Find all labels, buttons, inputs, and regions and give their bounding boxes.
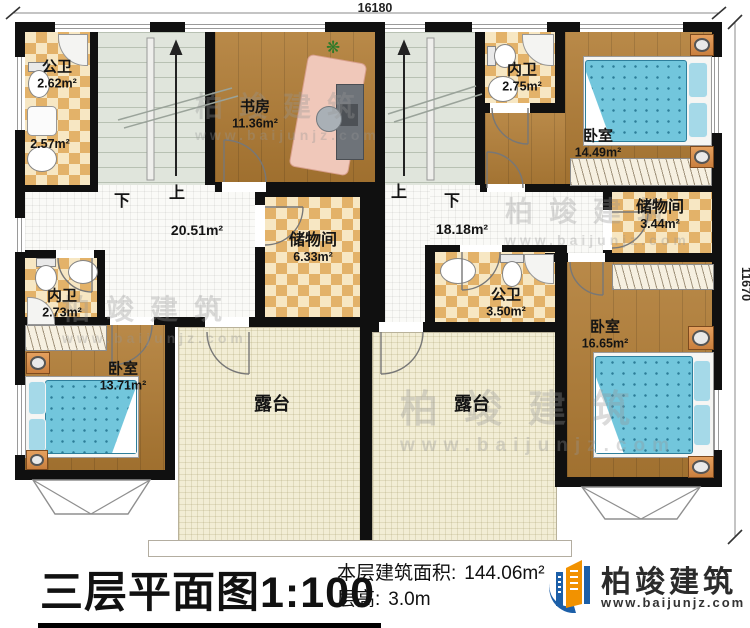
floor-height-row: 层高:3.0m [337, 587, 545, 613]
plan-info: 本层建筑面积:144.06m² 层高:3.0m [337, 561, 545, 612]
stair-label-left-up: 上 [169, 185, 185, 203]
room-label-bed-br: 卧室16.65m² [582, 320, 629, 351]
window-top-2 [185, 22, 325, 32]
plan-title: 三层平面图1:100 [38, 558, 381, 628]
window-left-2 [15, 218, 25, 252]
lamp-icon [694, 150, 710, 164]
room-label-bath-bl: 内卫2.73m² [42, 289, 82, 320]
room-label-bath-tl: 公卫2.62m² [37, 60, 77, 91]
sink-icon [440, 258, 476, 284]
lamp-icon [692, 460, 710, 474]
wall-stairs-bath-tr [475, 32, 485, 185]
nightstand-topright-1 [690, 34, 714, 56]
door-gap-terrace-right [379, 322, 423, 332]
window-top-5 [580, 22, 683, 32]
watermark: 柏竣建筑 www.baijunjz.com [195, 85, 380, 143]
wall-bath-tl-stairs [90, 32, 98, 185]
window-top-4 [472, 22, 547, 32]
washer-icon [27, 106, 57, 136]
window-left-3 [15, 385, 25, 455]
lamp-icon [30, 356, 46, 370]
wall-bed-bl-bottom [15, 470, 175, 480]
bed-topright-pillow-1 [688, 62, 708, 98]
wall-bath-tr-right [555, 22, 565, 113]
bed-bottomright-pillow-1 [693, 360, 711, 402]
window-left-1 [15, 57, 25, 130]
bed-bottomleft-pillow-2 [28, 418, 46, 452]
stair-label-left-down: 下 [114, 193, 130, 211]
room-label-bath-tr: 内卫2.75m² [502, 63, 542, 94]
nightstand-bottomright-2 [688, 456, 714, 478]
plant-icon: ❋ [326, 38, 340, 58]
room-label-study: 书房11.36m² [232, 100, 278, 131]
terrace-edge-band [148, 540, 572, 557]
stair-label-right-down: 下 [444, 193, 460, 211]
door-gap-bath-bl [56, 250, 94, 258]
door-gap-bed-br [568, 253, 605, 262]
floorplan-page: { "dimensions": { "top": "16180", "right… [0, 0, 750, 624]
wall-bed-br-bottom [555, 477, 712, 487]
bed-bottomleft-pillow-1 [28, 381, 46, 415]
dimension-top: 16180 [358, 1, 393, 15]
toilet-icon [502, 261, 522, 287]
room-label-hall-right: 18.18m² [436, 222, 488, 238]
door-gap-bath-tr [490, 103, 530, 113]
floor-height-label: 层高: [337, 589, 380, 610]
door-gap-bath-br [460, 245, 502, 252]
hallway-right-ext-floor [385, 185, 430, 332]
door-gap-storage-left [255, 205, 265, 247]
lamp-icon [692, 330, 710, 346]
terrace-left-floor [178, 327, 362, 542]
stair-label-right-up: 上 [391, 184, 407, 202]
floor-area-value: 144.06m² [464, 563, 544, 584]
brand-website: www.baijunjz.com [601, 595, 745, 610]
nightstand-bottomleft-2 [26, 450, 48, 470]
floor-area-row: 本层建筑面积:144.06m² [337, 561, 545, 587]
brand-logo-icon [544, 556, 598, 616]
dimension-right: 11670 [739, 267, 750, 301]
plan-title-text: 三层平面图 [40, 558, 260, 620]
wall-storage-right-bottom [603, 253, 712, 262]
wardrobe-bedroom-bottomright [612, 264, 714, 290]
nightstand-bottomleft-1 [26, 352, 50, 374]
staircase-right [385, 32, 475, 185]
window-right-1 [712, 57, 722, 133]
bed-bottomright-pillow-2 [693, 404, 711, 446]
room-label-terrace-left: 露台 [254, 394, 290, 414]
wall-hall-bath-br [425, 245, 435, 322]
floor-area-label: 本层建筑面积: [337, 563, 456, 584]
room-label-hall-left: 20.51m² [171, 223, 223, 239]
window-top-1 [55, 22, 150, 32]
bed-topright-pillow-2 [688, 102, 708, 138]
room-label-bed-tr: 卧室14.49m² [575, 129, 622, 160]
room-label-terrace-right: 露台 [454, 394, 490, 414]
nightstand-topright-2 [690, 146, 714, 168]
watermark: 柏竣建筑 www.baijunjz.com [400, 378, 676, 457]
room-label-storage-right: 储物间3.44m² [636, 199, 684, 231]
sink-icon [68, 260, 98, 284]
room-label-storage-left: 储物间6.33m² [289, 232, 337, 264]
nightstand-bottomright-1 [688, 326, 714, 350]
wall-terrace-divider [360, 327, 372, 540]
staircase-left [98, 32, 205, 185]
floor-height-value: 3.0m [388, 589, 430, 610]
wall-bath-tl-bottom [15, 185, 98, 192]
door-gap-study [222, 182, 266, 192]
room-label-bath-br: 公卫3.50m² [486, 288, 526, 319]
wall-storage-left-right [360, 188, 385, 327]
room-label-bath-tl-2: 2.57m² [30, 137, 70, 151]
watermark: 柏竣建筑 www.baijunjz.com [62, 288, 247, 346]
lamp-icon [694, 38, 710, 52]
room-label-bed-bl: 卧室13.71m² [100, 362, 147, 393]
lamp-icon [30, 454, 44, 466]
